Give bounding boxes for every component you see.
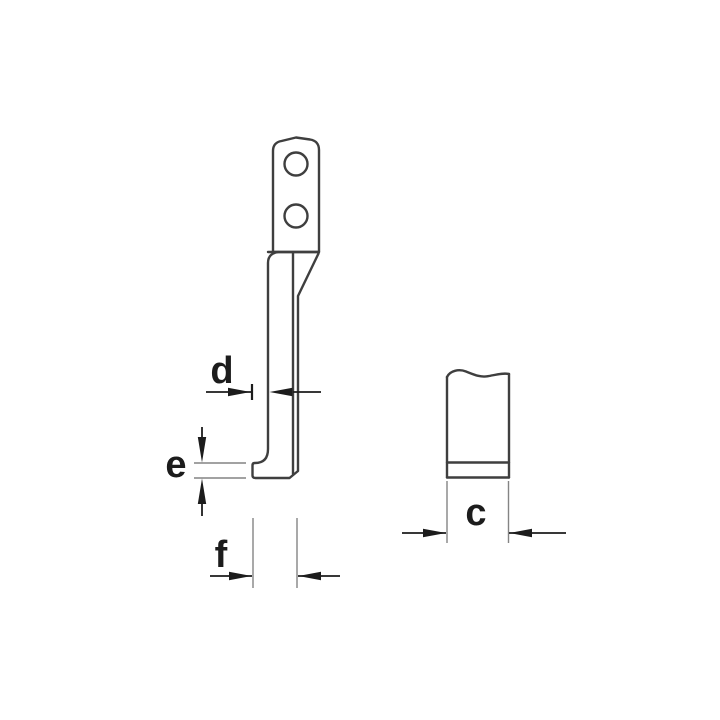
dimension-c-arrow-right: [510, 529, 533, 538]
dimension-c: c: [402, 481, 566, 543]
hook-shank-foot-outline: [253, 252, 319, 478]
hook-hole-top: [285, 153, 308, 176]
dimension-d-arrow-left: [228, 388, 251, 397]
hook-side-view: [253, 138, 320, 479]
dimension-d: d: [206, 350, 321, 400]
dimension-c-arrow-left: [423, 529, 446, 538]
dimension-e-arrow-top: [198, 437, 206, 463]
dimension-e-label: e: [165, 444, 186, 486]
dimension-f-arrow-right: [299, 572, 322, 581]
dimension-c-label: c: [465, 492, 486, 534]
dimension-f: f: [210, 518, 340, 588]
drawing-canvas: d e f c: [0, 0, 720, 720]
technical-drawing: d e f c: [0, 0, 720, 720]
front-view-break-line: [447, 370, 509, 377]
hook-front-view: [447, 370, 509, 477]
dimension-f-arrow-left: [229, 572, 252, 581]
dimension-d-label: d: [210, 350, 233, 392]
dimension-f-label: f: [215, 534, 228, 576]
dimension-d-arrow-right: [270, 388, 293, 397]
dimension-e: e: [165, 427, 246, 516]
hook-hole-bottom: [285, 205, 308, 228]
dimension-e-arrow-bottom: [198, 479, 206, 505]
